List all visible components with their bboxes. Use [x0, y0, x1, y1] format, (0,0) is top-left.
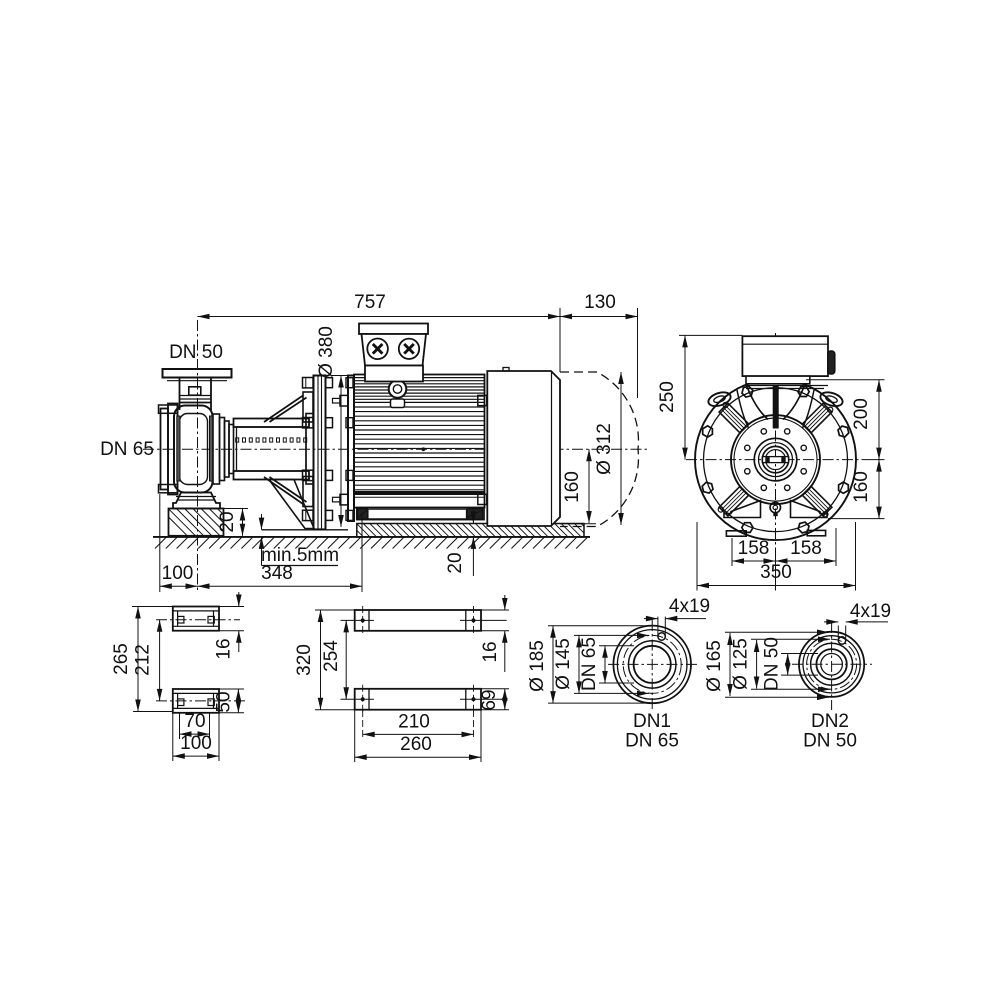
svg-text:158: 158	[790, 538, 822, 559]
svg-text:DN 50: DN 50	[169, 342, 223, 363]
svg-text:20: 20	[217, 511, 238, 532]
svg-text:210: 210	[398, 712, 430, 733]
svg-text:160: 160	[562, 471, 583, 503]
svg-text:16: 16	[480, 641, 501, 662]
svg-text:100: 100	[162, 563, 194, 584]
svg-text:Ø 165: Ø 165	[704, 640, 725, 692]
svg-text:DN 65: DN 65	[579, 637, 600, 691]
svg-text:DN 50: DN 50	[803, 731, 857, 752]
svg-text:Ø 125: Ø 125	[731, 638, 752, 690]
svg-text:200: 200	[851, 398, 872, 430]
svg-text:320: 320	[294, 644, 315, 676]
svg-text:250: 250	[657, 381, 678, 413]
svg-text:160: 160	[851, 471, 872, 503]
svg-text:DN1: DN1	[633, 711, 671, 732]
svg-text:Ø 380: Ø 380	[316, 326, 337, 378]
svg-text:158: 158	[738, 538, 770, 559]
svg-text:4x19: 4x19	[669, 596, 710, 617]
svg-text:212: 212	[133, 644, 154, 676]
svg-text:70: 70	[184, 711, 205, 732]
svg-text:350: 350	[760, 562, 792, 583]
svg-text:DN 65: DN 65	[100, 439, 154, 460]
svg-text:DN 50: DN 50	[762, 637, 783, 691]
svg-text:DN 65: DN 65	[625, 731, 679, 752]
svg-text:4x19: 4x19	[850, 601, 891, 622]
svg-text:265: 265	[111, 643, 132, 675]
svg-text:260: 260	[400, 734, 432, 755]
svg-text:DN2: DN2	[811, 711, 849, 732]
svg-text:Ø 145: Ø 145	[553, 638, 574, 690]
svg-text:Ø 312: Ø 312	[594, 423, 615, 475]
svg-text:16: 16	[214, 638, 235, 659]
svg-text:Ø 185: Ø 185	[527, 640, 548, 692]
svg-text:50: 50	[214, 691, 235, 712]
svg-text:757: 757	[354, 292, 386, 313]
svg-text:130: 130	[584, 292, 616, 313]
svg-text:100: 100	[180, 733, 212, 754]
svg-text:348: 348	[261, 563, 293, 584]
svg-text:69: 69	[479, 689, 500, 710]
svg-text:20: 20	[445, 552, 466, 573]
svg-text:254: 254	[321, 640, 342, 672]
